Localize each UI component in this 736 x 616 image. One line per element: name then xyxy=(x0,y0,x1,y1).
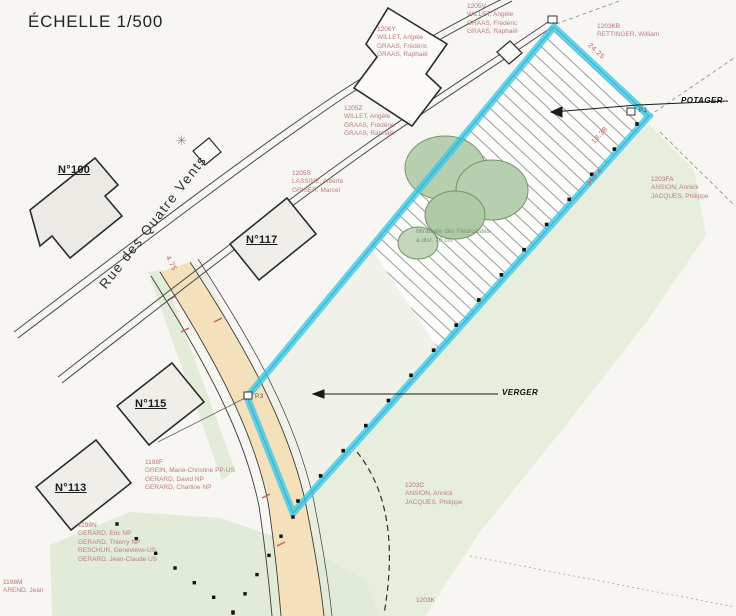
scale-title: ÉCHELLE 1/500 xyxy=(28,12,163,32)
parcel-owner: WILLET, Angèle xyxy=(377,34,428,42)
measurement-label: 24.25 xyxy=(586,42,605,61)
parcel-owner: GRAAS, Frédéric xyxy=(377,43,428,51)
parcel-owner: WILLET, Angèle xyxy=(344,113,395,121)
parcel-owner-label-1205Z: 1205ZWILLET, AngèleGRAAS, FrédéricGRAAS,… xyxy=(344,105,395,139)
parcel-owner: RESCHUR, Geneviève-US xyxy=(78,547,157,555)
parcel-owner-label-1203C: 1203CANSION, AnnickJACQUES, Philippe xyxy=(405,482,462,507)
measurement-label: 4.75 xyxy=(164,255,178,272)
cadastral-site-plan: ÉCHELLE 1/500 Rue des Quatre Vents POTAG… xyxy=(0,0,736,616)
parcel-owner: JACQUES, Philippe xyxy=(651,193,708,201)
parcel-owner-label-1205V: 1205VWILLET, AngèleGRAAS, FrédéricGRAAS,… xyxy=(467,3,518,37)
parcel-owner: RETTINGER, William xyxy=(597,31,659,39)
parcel-owner: GREIN, Marie-Christine PP-US xyxy=(145,467,235,475)
parcel-owner: ANSION, Annick xyxy=(651,184,708,192)
potager-zone-label: POTAGER xyxy=(681,96,723,105)
parcel-owner-label-1198N: 1198NGERARD, Eric NPGERARD, Thierry NPRE… xyxy=(78,522,157,564)
parcel-owner-label-1205S: 1205SLASSINE, AlberteGRISER, Marcel xyxy=(292,170,343,195)
parcel-owner: GERARD, Jean-Claude US xyxy=(78,556,157,564)
tree-annotation-line1: Mirabelle des Fleurcastes xyxy=(416,228,490,237)
parcel-owner-label-1206Y: 1206YWILLET, AngèleGRAAS, FrédéricGRAAS,… xyxy=(377,26,428,60)
house-number-label: N°100 xyxy=(58,164,90,176)
parcel-id: 1198F xyxy=(145,459,235,467)
parcel-owner: LASSINE, Alberte xyxy=(292,178,343,186)
street-name-label: Rue des Quatre Vents xyxy=(96,152,209,291)
parcel-id: 1206Y xyxy=(377,26,428,34)
tree-star-symbol: ✳ xyxy=(176,133,187,149)
survey-point-label: P.3 xyxy=(255,394,263,400)
parcel-owner: GRAAS, Raphaël xyxy=(377,51,428,59)
parcel-owner: JACQUES, Philippe xyxy=(405,499,462,507)
parcel-id: 1205S xyxy=(292,170,343,178)
parcel-owner: WILLET, Angèle xyxy=(467,11,518,19)
verger-zone-label: VERGER xyxy=(502,388,538,397)
tree-annotation-line2: à dist. 70 cm xyxy=(416,237,490,246)
parcel-id: 1198M xyxy=(3,579,43,587)
parcel-owner-label-1203KB: 1203KBRETTINGER, William xyxy=(597,23,659,40)
parcel-owner: GERARD, Thierry NP xyxy=(78,539,157,547)
survey-point-label: P.1 xyxy=(639,108,647,114)
parcel-id: 1205Z xyxy=(344,105,395,113)
parcel-owner: GERARD, Eric NP xyxy=(78,530,157,538)
parcel-owner-label-1198M: 1198MAREND, Jean xyxy=(3,579,43,596)
measurement-label: 352.4 xyxy=(586,168,605,188)
parcel-owner: GRAAS, Frédéric xyxy=(344,122,395,130)
measurement-label: 18.38 xyxy=(591,126,610,146)
parcel-id: 1205V xyxy=(467,3,518,11)
parcel-id: 1203KB xyxy=(597,23,659,31)
parcel-owner-label-1203K: 1203K xyxy=(416,597,435,605)
parcel-id: 1203K xyxy=(416,597,435,605)
parcel-owner-label-1203FA: 1203FAANSION, AnnickJACQUES, Philippe xyxy=(651,176,708,201)
parcel-owner: GRAAS, Frédéric xyxy=(467,20,518,28)
plan-labels: ÉCHELLE 1/500 Rue des Quatre Vents POTAG… xyxy=(0,0,736,616)
parcel-owner-label-1198F: 1198FGREIN, Marie-Christine PP-USGERARD,… xyxy=(145,459,235,493)
house-number-label: N°113 xyxy=(55,482,87,494)
parcel-owner: GERARD, Charline NP xyxy=(145,484,235,492)
parcel-id: 1203C xyxy=(405,482,462,490)
parcel-owner: GRAAS, Raphaël xyxy=(344,130,395,138)
parcel-owner: AREND, Jean xyxy=(3,587,43,595)
parcel-owner: GRAAS, Raphaël xyxy=(467,28,518,36)
tree-annotation: Mirabelle des Fleurcastes à dist. 70 cm xyxy=(416,228,490,246)
parcel-owner: GRISER, Marcel xyxy=(292,187,343,195)
house-number-label: N°117 xyxy=(246,234,278,246)
parcel-id: 1198N xyxy=(78,522,157,530)
house-number-label: N°115 xyxy=(135,398,167,410)
parcel-owner: ANSION, Annick xyxy=(405,490,462,498)
parcel-id: 1203FA xyxy=(651,176,708,184)
parcel-owner: GERARD, David NP xyxy=(145,476,235,484)
